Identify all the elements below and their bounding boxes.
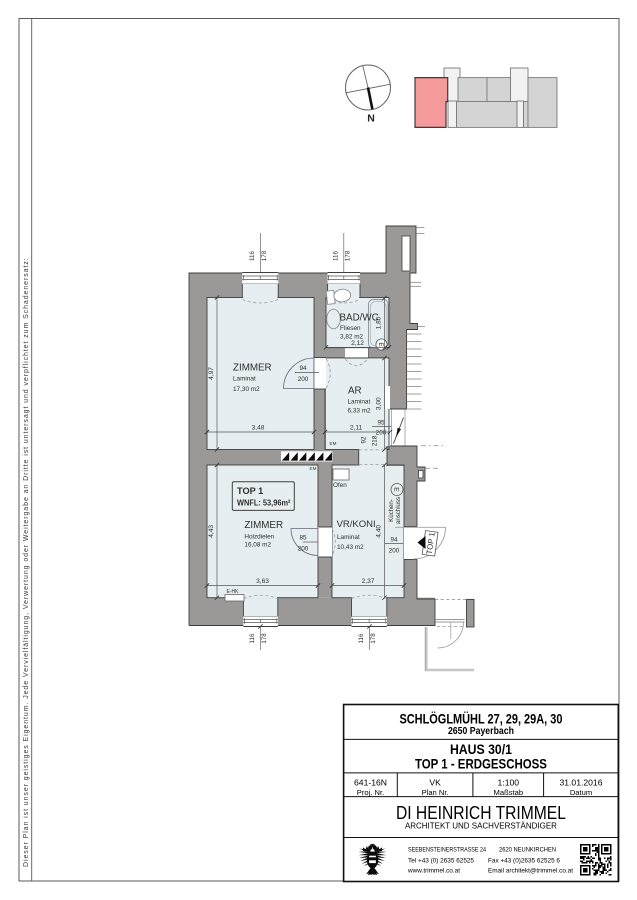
svg-text:178: 178	[370, 633, 377, 644]
svg-text:200: 200	[389, 547, 400, 554]
svg-text:VR/KONI: VR/KONI	[337, 519, 376, 530]
svg-text:E: E	[377, 342, 384, 346]
svg-text:92: 92	[361, 436, 368, 443]
svg-text:Plan Nr.: Plan Nr.	[422, 788, 449, 797]
svg-text:3,00: 3,00	[375, 397, 382, 410]
svg-text:4,40: 4,40	[375, 525, 382, 538]
svg-text:N: N	[367, 113, 375, 125]
svg-text:Holzdielen: Holzdielen	[244, 534, 274, 541]
svg-text:www.trimmel.co.at: www.trimmel.co.at	[407, 868, 460, 875]
svg-text:94: 94	[390, 536, 398, 543]
svg-text:1,80: 1,80	[375, 316, 382, 329]
svg-text:6,33 m2: 6,33 m2	[348, 408, 372, 415]
svg-text:Laminat: Laminat	[233, 375, 256, 382]
svg-text:95: 95	[377, 420, 385, 427]
svg-text:2620 NEUNKIRCHEN: 2620 NEUNKIRCHEN	[499, 847, 556, 854]
svg-text:SEEBENSTEINERSTRASSE 24: SEEBENSTEINERSTRASSE 24	[408, 847, 486, 854]
svg-text:116: 116	[249, 251, 256, 261]
svg-text:116: 116	[358, 633, 365, 643]
svg-text:1:100: 1:100	[498, 778, 520, 788]
svg-text:85: 85	[299, 534, 307, 541]
svg-text:SCHLÖGLMÜHL 27, 29, 29A, 30: SCHLÖGLMÜHL 27, 29, 29A, 30	[399, 712, 562, 727]
svg-text:200: 200	[376, 430, 387, 437]
svg-text:4,43: 4,43	[208, 525, 215, 538]
svg-text:200: 200	[298, 376, 309, 383]
svg-text:10,43 m2: 10,43 m2	[337, 544, 364, 551]
svg-text:Laminat: Laminat	[348, 399, 371, 406]
svg-text:WNFL: 53,96m²: WNFL: 53,96m²	[237, 498, 291, 508]
svg-text:178: 178	[261, 250, 268, 261]
svg-text:2,12: 2,12	[351, 340, 364, 347]
svg-text:16,08 m2: 16,08 m2	[244, 542, 271, 549]
svg-text:ARCHITEKT UND SACHVERSTÄNDIGER: ARCHITEKT UND SACHVERSTÄNDIGER	[405, 820, 557, 830]
svg-text:HAUS 30/1: HAUS 30/1	[450, 742, 512, 757]
svg-text:2,37: 2,37	[362, 578, 375, 585]
svg-text:641-16N: 641-16N	[354, 778, 387, 788]
svg-text:178: 178	[344, 250, 351, 261]
svg-text:4,97: 4,97	[208, 367, 215, 380]
svg-text:Email architekt@trimmel.co.at: Email architekt@trimmel.co.at	[488, 868, 573, 875]
svg-text:Tel +43 (0) 2635 62525: Tel +43 (0) 2635 62525	[408, 858, 474, 865]
svg-text:anschluss: anschluss	[395, 497, 402, 524]
svg-text:E-HK: E-HK	[227, 589, 240, 595]
svg-text:Maßstab: Maßstab	[494, 788, 524, 797]
svg-text:218: 218	[372, 435, 379, 446]
svg-text:EM: EM	[310, 466, 317, 471]
svg-text:178: 178	[261, 633, 268, 644]
svg-text:Ofen: Ofen	[333, 482, 347, 489]
svg-text:BAD/WC: BAD/WC	[340, 313, 379, 324]
svg-text:2650 Payerbach: 2650 Payerbach	[448, 726, 514, 737]
svg-text:E: E	[393, 487, 400, 492]
svg-text:2,11: 2,11	[350, 424, 363, 431]
svg-text:TOP 1 - ERDGESCHOSS: TOP 1 - ERDGESCHOSS	[415, 756, 547, 771]
svg-text:Küchen-: Küchen-	[388, 499, 395, 522]
svg-text:Dieser Plan ist unser geistige: Dieser Plan ist unser geistiges Eigentum…	[23, 257, 30, 867]
svg-text:Fliesen: Fliesen	[340, 325, 361, 332]
svg-text:AR: AR	[348, 386, 362, 397]
svg-text:116: 116	[332, 251, 339, 261]
svg-text:3,48: 3,48	[252, 424, 265, 431]
svg-text:ZIMMER: ZIMMER	[233, 363, 272, 374]
svg-text:EM: EM	[330, 441, 337, 446]
svg-text:Datum: Datum	[570, 788, 592, 797]
svg-text:Fax +43 (0)2635 62525 6: Fax +43 (0)2635 62525 6	[488, 858, 560, 865]
svg-text:94: 94	[299, 365, 307, 372]
svg-text:17,30 m2: 17,30 m2	[233, 386, 260, 393]
svg-text:31.01.2016: 31.01.2016	[559, 778, 602, 788]
svg-text:Laminat: Laminat	[337, 534, 360, 541]
svg-text:200: 200	[298, 546, 309, 553]
svg-text:ZIMMER: ZIMMER	[244, 520, 283, 531]
svg-text:116: 116	[249, 633, 256, 643]
svg-text:3,63: 3,63	[256, 578, 269, 585]
svg-text:VK: VK	[429, 778, 441, 788]
svg-text:TOP 1: TOP 1	[237, 486, 263, 496]
svg-text:Proj. Nr.: Proj. Nr.	[357, 788, 384, 797]
